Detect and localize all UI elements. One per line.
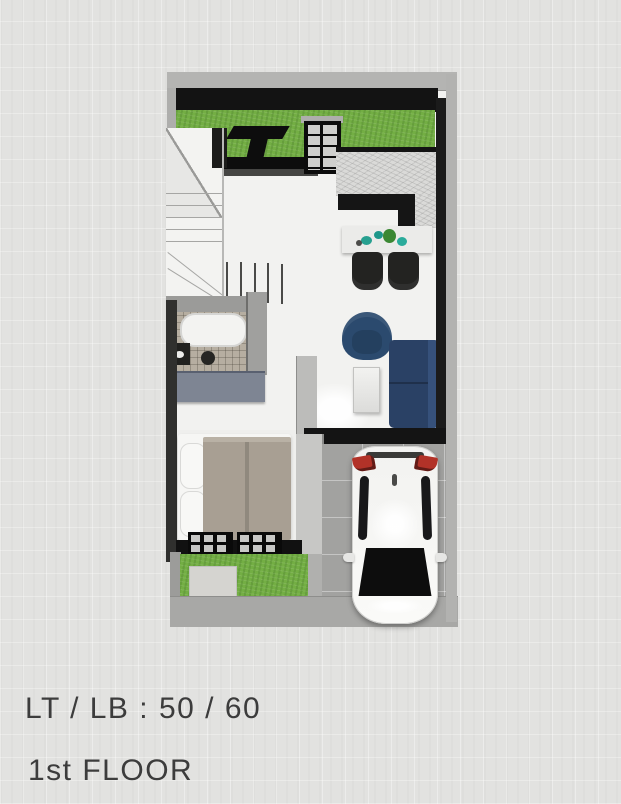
bathroom-right-wall — [246, 292, 267, 375]
sofa — [389, 340, 439, 428]
dining-chair — [352, 252, 383, 290]
bedroom-window — [188, 532, 233, 555]
railing-baluster — [267, 263, 269, 303]
floor-plan-page: LT / LB : 50 / 60 1st FLOOR — [0, 0, 621, 804]
area-label: LT / LB : 50 / 60 — [25, 692, 261, 726]
bedroom-right-wall — [296, 434, 324, 555]
staircase-edge — [222, 128, 224, 298]
teal-dish — [397, 237, 407, 246]
car-windshield — [357, 548, 433, 596]
floor-title: 1st FLOOR — [28, 754, 193, 788]
stepping-stone — [189, 566, 237, 600]
car-antenna — [392, 474, 397, 486]
car-hood-highlight — [368, 598, 422, 614]
bathtub — [180, 313, 247, 347]
dining-chair — [388, 252, 419, 290]
armchair — [342, 312, 392, 360]
table-item — [356, 240, 362, 246]
garage-wall — [304, 428, 447, 444]
armchair-seat — [352, 330, 382, 354]
staircase-treads — [166, 182, 223, 252]
bedroom-window — [237, 532, 282, 555]
staircase-newel — [212, 128, 227, 168]
railing-baluster — [281, 264, 283, 304]
teal-dish — [361, 236, 372, 245]
car-mirror-left — [343, 553, 354, 562]
coffee-table — [353, 367, 380, 413]
table-plant — [383, 229, 396, 243]
car-roof-highlight — [370, 498, 420, 550]
wardrobe — [168, 371, 265, 402]
car — [352, 446, 438, 624]
car-mirror-right — [436, 553, 447, 562]
kitchen-counter-edge — [338, 194, 402, 210]
bedroom-hall-wall — [296, 356, 317, 436]
bed-blanket — [203, 437, 291, 540]
teal-dish — [374, 231, 383, 239]
top-inner-wall — [176, 88, 438, 112]
right-outer-wall — [446, 74, 457, 622]
sofa-cushion-divider — [389, 382, 428, 384]
left-wall — [166, 300, 177, 562]
kitchen-counter — [336, 152, 446, 196]
kitchen-counter-edge-vertical — [398, 194, 415, 228]
toilet — [201, 351, 215, 365]
entry-porch-edge — [212, 169, 318, 176]
